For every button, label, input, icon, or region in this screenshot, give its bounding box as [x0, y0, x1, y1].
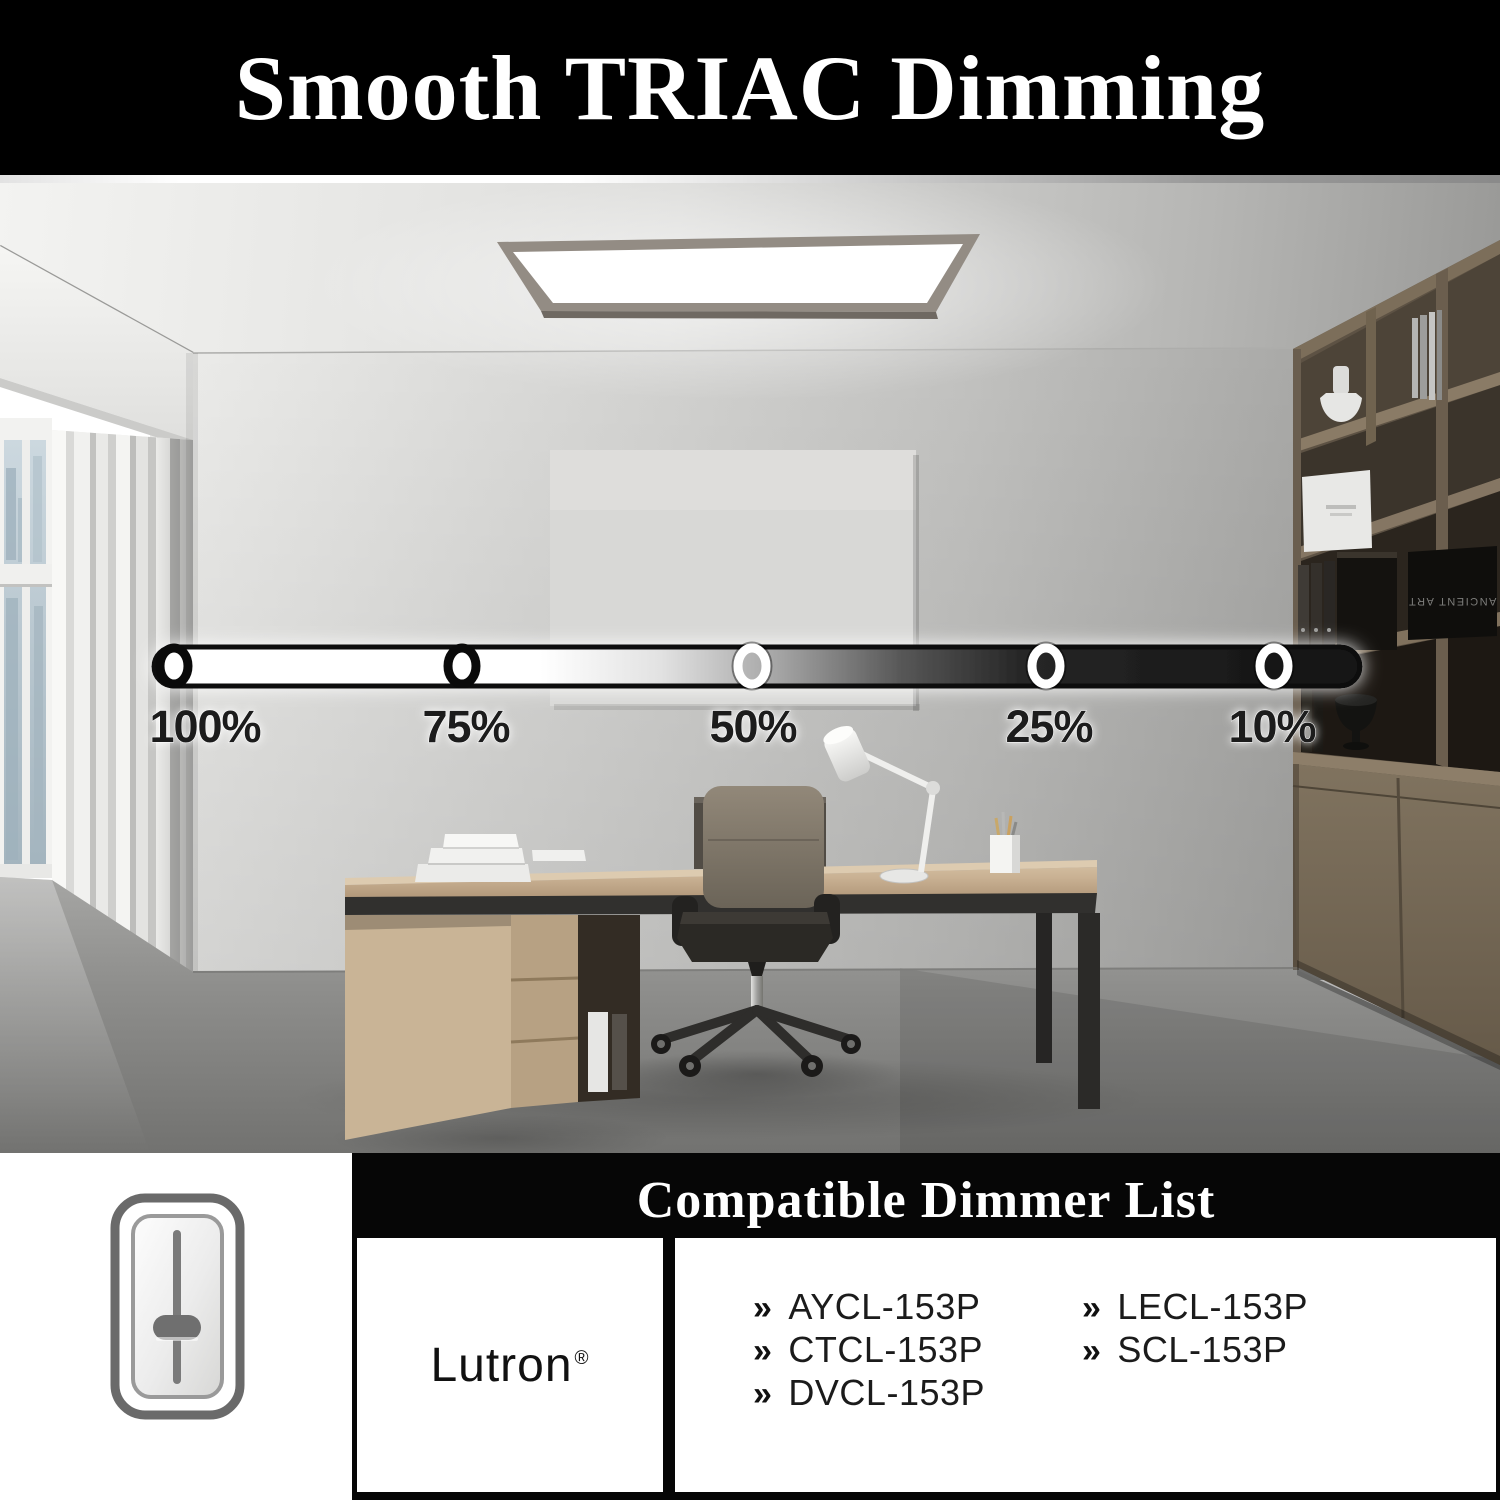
dim-level-label-25: 25% [1005, 701, 1092, 752]
black-box-book [1337, 552, 1397, 650]
brand-name: Lutron® [430, 1338, 589, 1393]
model-row: » SCL-153P [1082, 1329, 1308, 1372]
chevron-bullet-icon: » [1082, 1332, 1101, 1371]
dimmer-note-panel: (dimmer not included) [0, 1153, 352, 1500]
chevron-bullet-icon: » [753, 1375, 772, 1414]
office-room-photo: ANCIENT ART [0, 183, 1500, 1153]
model-row: » DVCL-153P [753, 1372, 985, 1415]
chair-column [751, 976, 763, 1010]
brand-cell: Lutron® [357, 1238, 663, 1492]
model-label: DVCL-153P [788, 1372, 985, 1414]
model-label: LECL-153P [1117, 1286, 1308, 1328]
dimmer-slider-icon [0, 1153, 352, 1440]
title-banner: Smooth TRIAC Dimming [0, 0, 1500, 175]
dim-level-label-50: 50% [709, 701, 796, 752]
model-row: » AYCL-153P [753, 1286, 985, 1329]
svg-text:ANCIENT ART: ANCIENT ART [1408, 595, 1497, 607]
dim-level-label-75: 75% [422, 701, 509, 752]
chair-backrest [703, 786, 824, 908]
led-ceiling-panel [497, 234, 980, 319]
compatible-dimmer-title: Compatible Dimmer List [352, 1171, 1500, 1230]
models-column-1: » AYCL-153P » CTCL-153P » DVCL-153P [753, 1286, 985, 1415]
model-label: SCL-153P [1117, 1329, 1287, 1371]
models-cell: » AYCL-153P » CTCL-153P » DVCL-153P » LE… [675, 1238, 1496, 1492]
brand-label: Lutron [430, 1339, 572, 1392]
dim-marker-100 [160, 648, 188, 684]
registered-mark: ® [575, 1348, 590, 1369]
desk-open-shelf [578, 915, 640, 1102]
white-album [1302, 470, 1372, 552]
models-column-2: » LECL-153P » SCL-153P [1082, 1286, 1308, 1372]
chevron-bullet-icon: » [1082, 1289, 1101, 1328]
model-label: CTCL-153P [788, 1329, 983, 1371]
desk-leg [1036, 913, 1052, 1063]
dim-level-label-10: 10% [1228, 701, 1315, 752]
dim-level-label-100: 100% [149, 701, 260, 752]
dim-marker-75 [448, 648, 476, 684]
shelf-books [1412, 310, 1442, 400]
desk-drawers [511, 915, 578, 1108]
ancient-art-album: ANCIENT ART [1408, 546, 1497, 640]
model-label: AYCL-153P [788, 1286, 980, 1328]
binder [588, 1012, 608, 1092]
black-binders [1298, 561, 1335, 651]
chevron-bullet-icon: » [753, 1332, 772, 1371]
desk-pedestal [345, 915, 511, 1140]
binder [612, 1014, 627, 1090]
room-scene: ANCIENT ART [0, 183, 1500, 1153]
banner-title: Smooth TRIAC Dimming [235, 35, 1265, 141]
window [0, 418, 52, 878]
shelf-divider [1366, 307, 1376, 446]
model-row: » LECL-153P [1082, 1286, 1308, 1329]
model-row: » CTCL-153P [753, 1329, 985, 1372]
slider-handle [153, 1315, 201, 1340]
product-infographic: Smooth TRIAC Dimming [0, 0, 1500, 1500]
chevron-bullet-icon: » [753, 1289, 772, 1328]
desk-leg [1078, 913, 1100, 1109]
banner-gradient-strip [0, 175, 1500, 183]
compatible-dimmer-section: Compatible Dimmer List Lutron® » AYCL-15… [352, 1153, 1500, 1500]
